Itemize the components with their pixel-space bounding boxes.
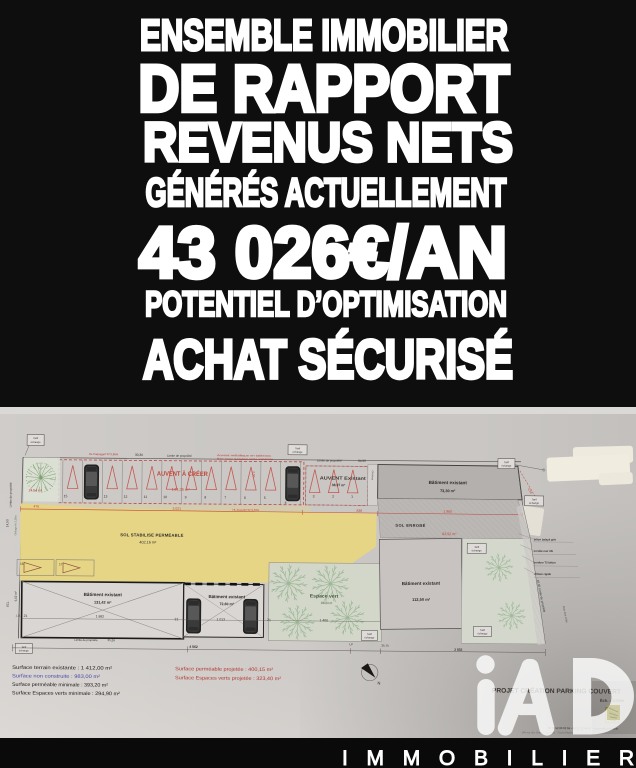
svg-text:112,50 m²: 112,50 m² — [412, 597, 431, 602]
svg-text:N: N — [377, 681, 380, 686]
svg-text:AUVENT À CRÉER: AUVENT À CRÉER — [157, 469, 208, 478]
svg-text:476: 476 — [34, 505, 40, 509]
svg-text:Surface perméable projetée : 4: Surface perméable projetée : 400,15 m² — [175, 666, 273, 673]
svg-text:35,75: 35,75 — [381, 644, 389, 648]
svg-text:Surface perméable minimale : 3: Surface perméable minimale : 393,20 m² — [12, 682, 108, 689]
svg-text:POTENTIEL D’OPTIMISATION: POTENTIEL D’OPTIMISATION — [145, 285, 507, 324]
svg-text:Tarif: Tarif — [21, 645, 26, 649]
svg-text:11: 11 — [144, 495, 148, 499]
svg-text:HL Paësage/TN=2,86m: HL Paësage/TN=2,86m — [89, 452, 119, 456]
svg-text:402,16 m²: 402,16 m² — [139, 540, 157, 544]
svg-text:SOL STABILISE PERMÉABLE: SOL STABILISE PERMÉABLE — [120, 532, 183, 538]
svg-text:Bâtiment existant: Bâtiment existant — [402, 581, 441, 586]
svg-text:14,50: 14,50 — [5, 519, 9, 527]
svg-text:AUVENT Existant: AUVENT Existant — [320, 476, 367, 481]
svg-text:3: 3 — [313, 494, 315, 498]
svg-text:échange: échange — [472, 548, 483, 552]
svg-text:6: 6 — [244, 496, 246, 500]
svg-text:Tarif: Tarif — [480, 628, 485, 632]
svg-text:83,52 m²: 83,52 m² — [442, 532, 457, 536]
svg-text:Espace vert: Espace vert — [310, 593, 339, 598]
svg-text:24,54 m²: 24,54 m² — [29, 488, 43, 492]
svg-text:échange: échange — [31, 440, 42, 444]
svg-text:15: 15 — [64, 494, 68, 498]
svg-text:21: 21 — [24, 614, 28, 618]
svg-text:1: 1 — [351, 495, 353, 499]
svg-text:Bâtiment existant: Bâtiment existant — [429, 480, 468, 485]
svg-text:échange: échange — [293, 450, 304, 454]
svg-text:Bâtiment existant: Bâtiment existant — [208, 594, 245, 599]
svg-text:21: 21 — [175, 617, 179, 621]
svg-text:Tarif: Tarif — [33, 436, 38, 440]
svg-text:838: 838 — [357, 509, 363, 513]
svg-text:2 832: 2 832 — [454, 648, 462, 652]
svg-text:12: 12 — [124, 495, 128, 499]
svg-text:131,42 m²: 131,42 m² — [94, 601, 112, 605]
svg-text:Limite de propriété: Limite de propriété — [9, 482, 13, 507]
svg-text:Tarif: Tarif — [504, 460, 509, 464]
svg-text:REVENUS NETS: REVENUS NETS — [143, 111, 513, 173]
svg-text:HL Auvent/TN=2,36m: HL Auvent/TN=2,36m — [233, 508, 260, 512]
svg-text:échange: échange — [19, 648, 30, 652]
svg-text:échange: échange — [529, 501, 540, 505]
svg-text:295,04 m²: 295,04 m² — [321, 601, 333, 605]
svg-text:Limite de propriété: Limite de propriété — [74, 638, 98, 642]
svg-text:4 562: 4 562 — [189, 645, 198, 649]
svg-text:73,30 m²: 73,30 m² — [440, 489, 456, 493]
svg-text:béton balayé gris: béton balayé gris — [534, 537, 557, 541]
svg-text:clôture rigide: clôture rigide — [534, 572, 552, 576]
svg-text:Tarif: Tarif — [367, 632, 372, 636]
svg-text:Surface terrain existante : 1: Surface terrain existante : 1 412,00 m² — [12, 665, 112, 672]
svg-text:6,62 m²: 6,62 m² — [14, 591, 18, 601]
svg-text:43 026€/AN: 43 026€/AN — [139, 214, 507, 293]
svg-text:10: 10 — [163, 495, 167, 499]
svg-text:35,26: 35,26 — [107, 638, 115, 642]
svg-text:72,60 m²: 72,60 m² — [219, 602, 234, 606]
svg-text:Cheneau: Cheneau — [371, 470, 374, 480]
svg-text:SOL ENROBÉ: SOL ENROBÉ — [395, 523, 425, 528]
svg-text:Bâtiment existant: Bâtiment existant — [84, 592, 123, 597]
svg-text:13: 13 — [104, 495, 108, 499]
svg-text:SCL: SCL — [6, 601, 10, 607]
svg-text:Tarif: Tarif — [474, 545, 479, 549]
svg-text:Bac acier isolation laine miné: Bac acier isolation laine minérale — [217, 458, 274, 461]
svg-text:34,50: 34,50 — [358, 459, 366, 463]
svg-text:17: 17 — [59, 562, 63, 566]
svg-text:1 982: 1 982 — [96, 615, 105, 619]
svg-text:GÉNÉRÉS ACTUELLEMENT: GÉNÉRÉS ACTUELLEMENT — [146, 170, 507, 215]
svg-text:144,35 m²: 144,35 m² — [172, 487, 191, 492]
svg-text:7: 7 — [224, 496, 226, 500]
svg-text:2: 2 — [332, 495, 334, 499]
svg-text:Tarif: Tarif — [532, 497, 537, 501]
svg-text:9: 9 — [185, 495, 187, 499]
svg-text:LP: LP — [349, 642, 353, 646]
svg-text:échange: échange — [477, 631, 488, 635]
svg-text:Limite de propriété: Limite de propriété — [167, 454, 192, 458]
svg-text:16: 16 — [20, 562, 24, 566]
svg-text:Surface Espaces verts projetée: Surface Espaces verts projetée : 323,40 … — [175, 675, 281, 682]
svg-text:bordure T2 béton: bordure T2 béton — [534, 560, 556, 564]
svg-text:21: 21 — [267, 618, 271, 622]
svg-text:5: 5 — [264, 496, 266, 500]
svg-text:Surface non construite : 983,0: Surface non construite : 983,00 m² — [12, 673, 100, 680]
svg-text:2,50: 2,50 — [252, 471, 256, 477]
svg-text:1 860: 1 860 — [443, 510, 452, 514]
svg-text:4: 4 — [285, 501, 287, 505]
svg-text:Grillage Ht 2,26m: Grillage Ht 2,26m — [13, 515, 17, 535]
svg-text:1 400: 1 400 — [320, 619, 329, 623]
svg-text:8: 8 — [204, 496, 206, 500]
svg-text:ACHAT SÉCURISÉ: ACHAT SÉCURISÉ — [143, 328, 513, 390]
svg-text:1,11: 1,11 — [16, 613, 21, 617]
svg-text:30,30: 30,30 — [135, 453, 143, 457]
svg-text:échange: échange — [364, 635, 375, 639]
svg-text:Tarif: Tarif — [295, 446, 300, 450]
svg-text:3 021: 3 021 — [173, 507, 182, 511]
svg-text:enrobé noir 0/6: enrobé noir 0/6 — [534, 549, 554, 553]
svg-text:Surface Espaces verts minimale: Surface Espaces verts minimale : 294,90 … — [12, 690, 120, 697]
svg-text:échange: échange — [501, 464, 512, 468]
svg-text:Limite de propriété: Limite de propriété — [317, 458, 342, 462]
svg-text:1 013: 1 013 — [217, 618, 226, 622]
svg-text:38,97 m²: 38,97 m² — [332, 483, 346, 487]
